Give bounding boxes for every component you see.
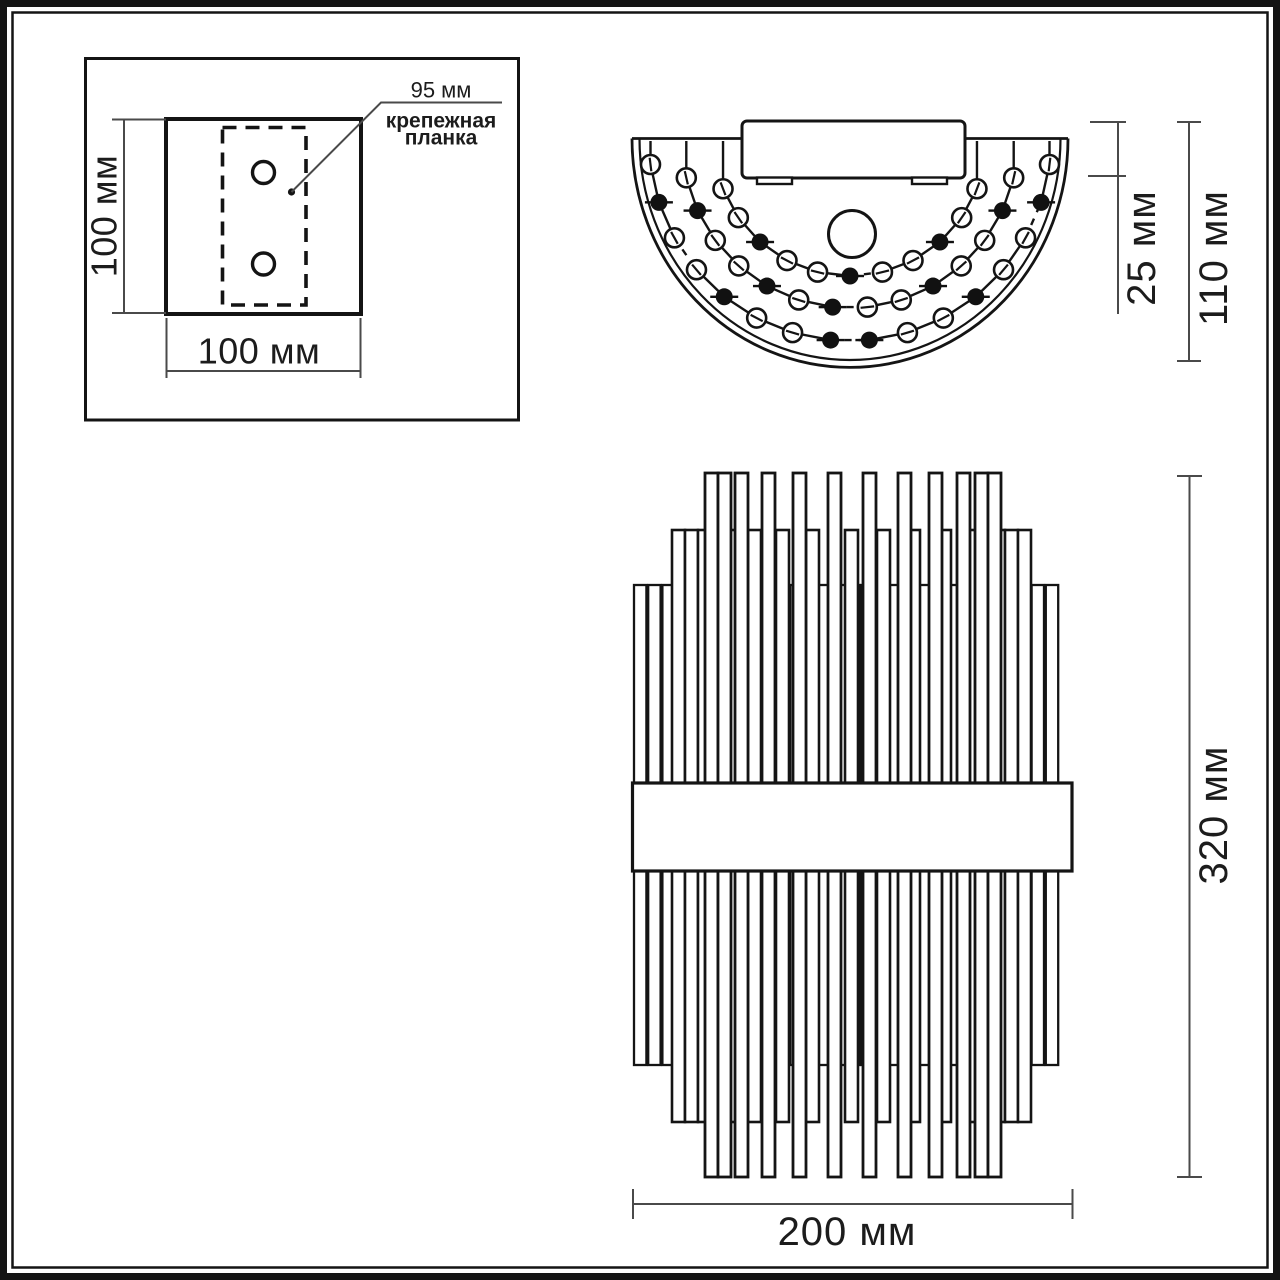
- mounting-box-foot-left: [757, 178, 792, 185]
- plate-height-dimension: 100 мм: [84, 120, 167, 314]
- crystal-bead-dark: [822, 332, 839, 349]
- total-depth-dimension: 110 мм: [1177, 122, 1236, 361]
- box-depth-label: 25 мм: [1120, 190, 1164, 306]
- screw-hole-top: [253, 162, 275, 184]
- lamp-socket: [829, 211, 876, 258]
- crystal-bead-dark: [1033, 194, 1050, 211]
- crystal-bead-dark: [925, 278, 942, 295]
- center-band: [633, 783, 1073, 871]
- crystal-bead-dark: [967, 288, 984, 305]
- top-view: 25 мм 110 мм: [632, 121, 1236, 367]
- plate-outline: [166, 119, 361, 314]
- crystal-bead-dark: [758, 278, 775, 295]
- front-height-dimension: 320 мм: [1177, 476, 1236, 1177]
- bar-width-label: 95 мм: [411, 78, 472, 103]
- screw-hole-bottom: [253, 253, 275, 275]
- crystal-bead-dark: [842, 268, 859, 285]
- mounting-box: [742, 121, 965, 178]
- crystal-bead-dark: [716, 288, 733, 305]
- front-view: 320 мм 200 мм: [633, 473, 1237, 1254]
- crystal-bead-dark: [861, 332, 878, 349]
- mounting-box-foot-right: [912, 178, 947, 185]
- crystal-bead-dark: [931, 234, 948, 251]
- crystal-bead-dark: [689, 202, 706, 219]
- crystal-bead-dark: [994, 202, 1011, 219]
- crystal-bead-dark: [824, 299, 841, 316]
- front-height-label: 320 мм: [1192, 746, 1236, 885]
- plate-width-dimension: 100 мм: [167, 318, 361, 378]
- crystal-bead-dark: [650, 194, 667, 211]
- box-depth-dimension: 25 мм: [1088, 122, 1164, 314]
- technical-drawing: 95 мм крепежная планка 100 мм 100 мм: [0, 0, 1280, 1280]
- plate-height-label: 100 мм: [84, 155, 125, 278]
- crystal-bead-slash: [861, 306, 875, 307]
- mounting-plate-view: 95 мм крепежная планка 100 мм 100 мм: [84, 59, 519, 421]
- crystal-bead-dark: [752, 234, 769, 251]
- bar-note-line2: планка: [405, 127, 478, 150]
- front-width-dimension: 200 мм: [633, 1189, 1073, 1254]
- mounting-bar-dashed-outline: [223, 128, 307, 306]
- total-depth-label: 110 мм: [1192, 190, 1236, 326]
- plate-width-label: 100 мм: [198, 331, 321, 372]
- front-width-label: 200 мм: [778, 1210, 917, 1254]
